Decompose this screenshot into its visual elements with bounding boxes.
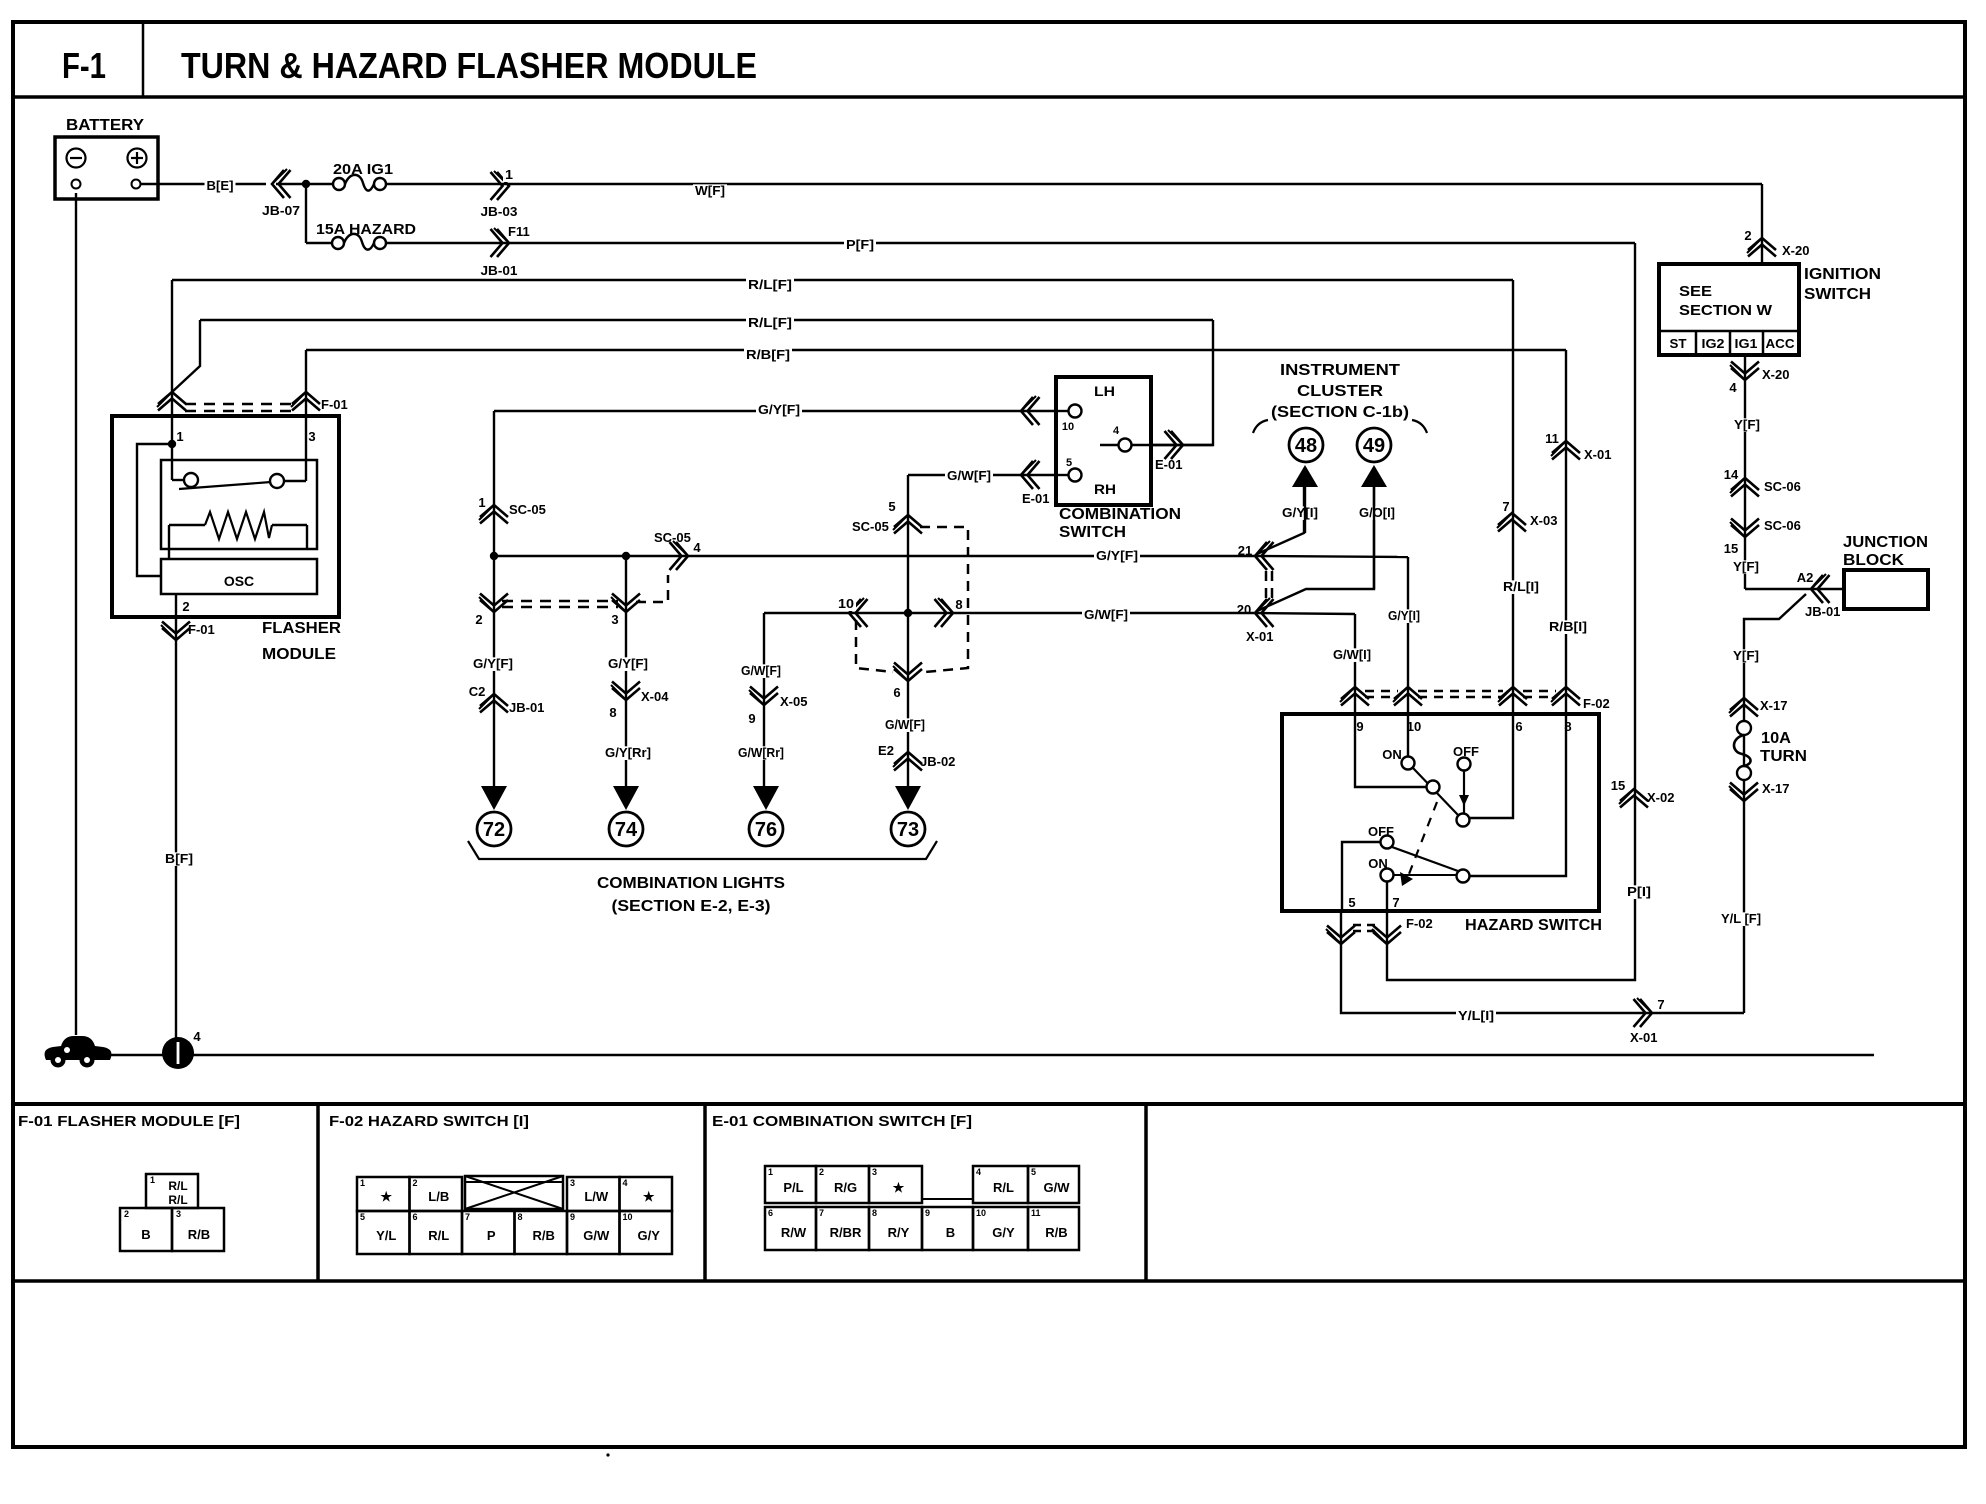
svg-text:G/W[F]: G/W[F] (885, 717, 925, 732)
svg-text:★: ★ (643, 1189, 655, 1204)
svg-text:10A: 10A (1761, 730, 1791, 747)
svg-text:R/B: R/B (1045, 1225, 1067, 1240)
svg-text:G/W[F]: G/W[F] (741, 663, 781, 678)
svg-text:6: 6 (893, 685, 900, 700)
svg-text:7: 7 (819, 1208, 824, 1218)
svg-text:2: 2 (1744, 228, 1751, 243)
svg-text:F-01 FLASHER MODULE [F]: F-01 FLASHER MODULE [F] (18, 1113, 240, 1130)
svg-text:BATTERY: BATTERY (66, 117, 144, 134)
svg-text:Y/L [F]: Y/L [F] (1721, 911, 1761, 926)
svg-text:IG1: IG1 (1735, 336, 1758, 351)
svg-text:B: B (946, 1225, 955, 1240)
svg-text:F-1: F-1 (62, 45, 106, 86)
svg-text:1: 1 (768, 1167, 773, 1177)
svg-text:6: 6 (768, 1208, 773, 1218)
svg-text:4: 4 (693, 540, 701, 555)
svg-text:5: 5 (1031, 1167, 1036, 1177)
svg-text:8: 8 (609, 705, 616, 720)
svg-text:Y[F]: Y[F] (1733, 648, 1759, 663)
svg-text:FLASHER: FLASHER (262, 620, 341, 637)
svg-text:COMBINATION LIGHTS: COMBINATION LIGHTS (597, 875, 785, 892)
svg-text:C2: C2 (469, 684, 486, 699)
svg-text:E-01: E-01 (1022, 491, 1049, 506)
svg-text:R/L: R/L (993, 1180, 1014, 1195)
svg-text:INSTRUMENT: INSTRUMENT (1280, 362, 1400, 379)
svg-text:★: ★ (893, 1180, 905, 1195)
svg-text:E-01: E-01 (1155, 457, 1182, 472)
svg-text:8: 8 (955, 597, 962, 612)
svg-text:TURN & HAZARD FLASHER MODULE: TURN & HAZARD FLASHER MODULE (181, 45, 757, 86)
svg-text:JB-03: JB-03 (481, 204, 518, 219)
svg-text:OSC: OSC (224, 573, 254, 589)
svg-text:2: 2 (475, 612, 482, 627)
svg-text:P/L: P/L (783, 1180, 803, 1195)
svg-text:★: ★ (380, 1189, 392, 1204)
svg-text:4: 4 (1113, 425, 1120, 437)
svg-text:3: 3 (570, 1178, 575, 1188)
svg-text:G/Y: G/Y (992, 1225, 1015, 1240)
svg-text:20: 20 (1237, 602, 1251, 617)
svg-text:IGNITION: IGNITION (1804, 266, 1881, 283)
svg-text:TURN: TURN (1760, 748, 1807, 765)
svg-text:R/L[I]: R/L[I] (1503, 579, 1539, 594)
svg-text:2: 2 (819, 1167, 824, 1177)
svg-text:9: 9 (748, 711, 755, 726)
svg-text:X-01: X-01 (1246, 629, 1273, 644)
svg-text:5: 5 (1066, 457, 1072, 469)
svg-text:1: 1 (360, 1178, 365, 1188)
svg-text:R/B: R/B (533, 1228, 555, 1243)
svg-text:L/W: L/W (584, 1189, 609, 1204)
svg-text:6: 6 (413, 1212, 418, 1222)
svg-text:G/Y[F]: G/Y[F] (608, 656, 648, 671)
svg-text:JB-01: JB-01 (509, 700, 544, 715)
svg-text:G/W[F]: G/W[F] (947, 468, 991, 483)
svg-text:SC-06: SC-06 (1764, 518, 1801, 533)
svg-text:1: 1 (176, 429, 183, 444)
svg-text:10: 10 (976, 1208, 986, 1218)
svg-text:SC-05: SC-05 (654, 530, 691, 545)
svg-text:G/O[I]: G/O[I] (1359, 505, 1395, 520)
svg-text:G/Y[F]: G/Y[F] (1096, 548, 1138, 563)
svg-text:G/Y[F]: G/Y[F] (473, 656, 513, 671)
svg-text:4: 4 (193, 1029, 201, 1044)
svg-text:SWITCH: SWITCH (1804, 286, 1871, 303)
svg-text:(SECTION C-1b): (SECTION C-1b) (1271, 404, 1409, 421)
svg-text:X-01: X-01 (1584, 447, 1611, 462)
svg-text:G/W: G/W (583, 1228, 610, 1243)
svg-text:X-04: X-04 (641, 689, 669, 704)
svg-text:(SECTION E-2, E-3): (SECTION E-2, E-3) (612, 898, 771, 915)
svg-text:1: 1 (478, 495, 485, 510)
svg-text:3: 3 (611, 612, 618, 627)
svg-text:2: 2 (124, 1209, 129, 1219)
svg-text:G/Y[I]: G/Y[I] (1388, 608, 1420, 623)
svg-text:R/L[F]: R/L[F] (748, 315, 792, 330)
svg-text:9: 9 (570, 1212, 575, 1222)
svg-text:B[E]: B[E] (207, 178, 234, 193)
svg-text:R/G: R/G (834, 1180, 857, 1195)
svg-text:IG2: IG2 (1702, 336, 1725, 351)
svg-text:5: 5 (1348, 895, 1355, 910)
svg-text:E-01 COMBINATION SWITCH [F]: E-01 COMBINATION SWITCH [F] (712, 1113, 972, 1130)
svg-text:CLUSTER: CLUSTER (1297, 383, 1383, 400)
svg-text:2: 2 (413, 1178, 418, 1188)
svg-text:R/L: R/L (428, 1228, 449, 1243)
svg-text:R/B[I]: R/B[I] (1549, 619, 1587, 634)
svg-text:SC-05: SC-05 (509, 502, 546, 517)
svg-text:7: 7 (1657, 997, 1664, 1012)
svg-text:JB-07: JB-07 (262, 203, 300, 218)
svg-text:A2: A2 (1797, 570, 1814, 585)
svg-text:73: 73 (897, 819, 919, 841)
svg-text:R/BR: R/BR (830, 1225, 862, 1240)
svg-text:JB-02: JB-02 (920, 754, 955, 769)
svg-text:ON: ON (1382, 747, 1402, 762)
svg-text:15: 15 (1611, 778, 1625, 793)
svg-text:BLOCK: BLOCK (1843, 552, 1904, 569)
svg-text:G/W: G/W (1044, 1180, 1071, 1195)
svg-text:Y/L[I]: Y/L[I] (1458, 1008, 1494, 1023)
svg-text:ACC: ACC (1766, 336, 1796, 351)
svg-text:MODULE: MODULE (262, 646, 336, 663)
svg-text:10: 10 (838, 596, 854, 611)
svg-text:4: 4 (1729, 380, 1737, 395)
svg-text:X-20: X-20 (1782, 243, 1809, 258)
svg-text:X-03: X-03 (1530, 513, 1557, 528)
svg-text:F-01: F-01 (188, 622, 215, 637)
svg-text:X-17: X-17 (1762, 781, 1789, 796)
svg-text:2: 2 (182, 599, 189, 614)
svg-text:14: 14 (1724, 467, 1739, 482)
svg-text:SWITCH: SWITCH (1059, 524, 1126, 541)
svg-text:F11: F11 (508, 224, 530, 239)
svg-text:P[F]: P[F] (846, 237, 874, 252)
svg-text:HAZARD SWITCH: HAZARD SWITCH (1465, 917, 1602, 934)
svg-text:15A HAZARD: 15A HAZARD (316, 221, 416, 238)
svg-text:G/Y[I]: G/Y[I] (1282, 505, 1318, 520)
svg-text:P: P (487, 1228, 496, 1243)
svg-text:R/W: R/W (781, 1225, 807, 1240)
svg-text:F-02 HAZARD SWITCH [I]: F-02 HAZARD SWITCH [I] (329, 1113, 529, 1130)
svg-text:F-02: F-02 (1583, 696, 1610, 711)
svg-text:10: 10 (1062, 421, 1074, 433)
svg-text:11: 11 (1545, 431, 1559, 446)
svg-text:R/B: R/B (188, 1227, 210, 1242)
svg-text:3: 3 (176, 1209, 181, 1219)
svg-text:5: 5 (888, 499, 895, 514)
svg-text:9: 9 (1356, 719, 1363, 734)
svg-text:F-02: F-02 (1406, 916, 1433, 931)
svg-text:72: 72 (483, 819, 505, 841)
svg-text:8: 8 (872, 1208, 877, 1218)
svg-text:ST: ST (1670, 336, 1687, 351)
svg-text:7: 7 (465, 1212, 470, 1222)
svg-text:1: 1 (150, 1175, 155, 1185)
svg-text:15: 15 (1724, 541, 1738, 556)
svg-text:R/L: R/L (168, 1193, 187, 1207)
svg-text:76: 76 (755, 819, 777, 841)
svg-text:G/W[F]: G/W[F] (1084, 607, 1128, 622)
svg-text:G/W[Rr]: G/W[Rr] (738, 745, 784, 760)
svg-text:Y[F]: Y[F] (1734, 417, 1760, 432)
svg-text:W[F]: W[F] (695, 183, 725, 198)
svg-text:6: 6 (1515, 719, 1522, 734)
svg-text:7: 7 (1502, 499, 1509, 514)
svg-text:G/Y: G/Y (638, 1228, 661, 1243)
svg-text:COMBINATION: COMBINATION (1059, 506, 1181, 523)
svg-text:8: 8 (518, 1212, 523, 1222)
svg-text:10: 10 (623, 1212, 633, 1222)
svg-text:P[I]: P[I] (1627, 884, 1651, 899)
svg-text:X-01: X-01 (1630, 1030, 1657, 1045)
svg-text:X-17: X-17 (1760, 698, 1787, 713)
svg-text:9: 9 (925, 1208, 930, 1218)
svg-text:5: 5 (360, 1212, 365, 1222)
svg-text:E2: E2 (878, 743, 894, 758)
svg-text:X-20: X-20 (1762, 367, 1789, 382)
svg-text:11: 11 (1031, 1208, 1041, 1218)
svg-text:LH: LH (1094, 383, 1115, 399)
svg-text:1: 1 (505, 167, 513, 182)
svg-text:B[F]: B[F] (165, 851, 193, 866)
svg-text:SC-05: SC-05 (852, 519, 889, 534)
svg-text:JB-01: JB-01 (481, 263, 518, 278)
svg-text:R/L[F]: R/L[F] (748, 277, 792, 292)
svg-text:Y[F]: Y[F] (1733, 559, 1759, 574)
svg-text:L/B: L/B (428, 1189, 449, 1204)
svg-text:JUNCTION: JUNCTION (1843, 534, 1928, 551)
svg-text:G/Y[F]: G/Y[F] (758, 402, 800, 417)
svg-text:3: 3 (308, 429, 315, 444)
svg-text:G/W[I]: G/W[I] (1333, 647, 1371, 662)
svg-text:SEE: SEE (1679, 283, 1712, 300)
svg-text:B: B (141, 1227, 150, 1242)
svg-text:R/L: R/L (168, 1179, 187, 1193)
svg-text:RH: RH (1094, 481, 1116, 497)
svg-text:4: 4 (623, 1178, 628, 1188)
svg-text:SC-06: SC-06 (1764, 479, 1801, 494)
svg-text:G/Y[Rr]: G/Y[Rr] (605, 745, 651, 760)
svg-text:20A IG1: 20A IG1 (333, 161, 393, 178)
svg-text:X-02: X-02 (1647, 790, 1674, 805)
svg-text:F-01: F-01 (321, 397, 348, 412)
svg-text:7: 7 (1392, 895, 1399, 910)
svg-text:48: 48 (1295, 435, 1317, 457)
svg-text:4: 4 (976, 1167, 981, 1177)
svg-text:X-05: X-05 (780, 694, 807, 709)
svg-text:3: 3 (872, 1167, 877, 1177)
svg-text:49: 49 (1363, 435, 1385, 457)
svg-text:JB-01: JB-01 (1805, 604, 1840, 619)
svg-text:R/Y: R/Y (888, 1225, 910, 1240)
svg-text:74: 74 (615, 819, 638, 841)
svg-text:Y/L: Y/L (376, 1228, 396, 1243)
svg-text:21: 21 (1238, 543, 1252, 558)
svg-text:R/B[F]: R/B[F] (746, 347, 790, 362)
svg-text:SECTION W: SECTION W (1679, 302, 1773, 319)
